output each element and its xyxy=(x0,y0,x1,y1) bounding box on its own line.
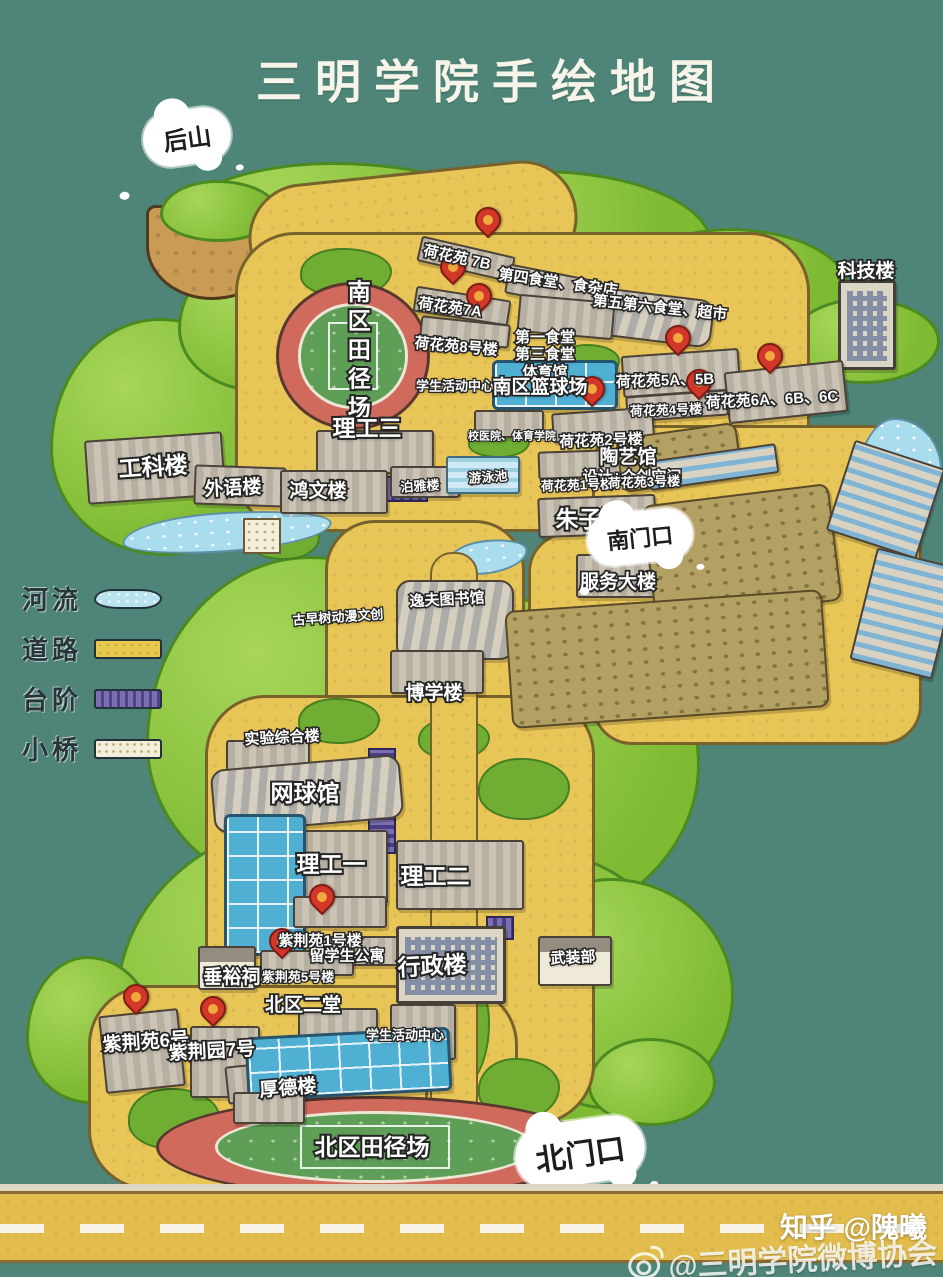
weibo-icon xyxy=(627,1251,660,1277)
map-label: 陶艺馆 xyxy=(599,447,656,469)
map-label: 北区田径场 xyxy=(315,1134,430,1160)
map-label: 第一食堂 第三食堂 体育馆 xyxy=(515,329,575,381)
legend-swatch-bridge xyxy=(94,739,162,759)
map-label: 南区田径场 xyxy=(344,280,370,425)
legend-swatch-steps xyxy=(94,689,162,709)
legend-item-steps: 台阶 xyxy=(22,680,162,717)
south-gate-cloud-label: 南门口 xyxy=(606,523,674,555)
legend-label: 小桥 xyxy=(22,730,82,767)
tree-mass xyxy=(588,1038,716,1126)
map-label: 外语楼 xyxy=(204,477,262,502)
map-canvas: 三明学院手绘地图 河流道路台阶小桥 知乎 @隗曦 @三明学院微博协会 荷花苑 7… xyxy=(0,0,943,1277)
legend: 河流道路台阶小桥 xyxy=(22,580,162,767)
map-label: 北区二堂 xyxy=(265,995,341,1017)
map-label: 垂裕祠 xyxy=(203,967,260,989)
grass-patch xyxy=(478,758,570,820)
legend-label: 道路 xyxy=(22,630,82,667)
map-label: 荷花苑3号楼 xyxy=(608,474,681,491)
legend-swatch-road xyxy=(94,639,162,659)
legend-item-road: 道路 xyxy=(22,630,162,667)
map-label: 理工二 xyxy=(401,863,470,889)
map-label: 学生活动中心 xyxy=(416,380,494,395)
page-title: 三明学院手绘地图 xyxy=(256,46,728,112)
back-hill-cloud-label: 后山 xyxy=(162,123,213,156)
map-label: 博学楼 xyxy=(405,683,462,705)
north-gate-cloud-label: 北门口 xyxy=(534,1133,628,1178)
map-label: 行政楼 xyxy=(397,951,467,981)
map-label: 紫荆苑5号楼 xyxy=(262,971,334,986)
map-label: 游泳池 xyxy=(468,469,508,487)
back-hill-cloud: 后山 xyxy=(140,104,235,171)
keji-tower xyxy=(838,280,896,370)
map-label: 网球馆 xyxy=(271,780,340,806)
map-label: 紫荆园7号 xyxy=(168,1039,256,1065)
map-label: 武装部 xyxy=(550,948,596,968)
legend-item-bridge: 小桥 xyxy=(22,730,162,767)
map-label: 校医院、体育学院 xyxy=(468,431,556,444)
legend-swatch-river xyxy=(94,589,162,609)
south-gate-cloud: 南门口 xyxy=(585,506,696,569)
map-label: 理工一 xyxy=(297,851,366,877)
map-label: 工科楼 xyxy=(118,451,189,482)
road-curb xyxy=(0,1184,943,1191)
north-gate-cloud: 北门口 xyxy=(511,1111,649,1192)
map-label: 服务大楼 xyxy=(580,572,656,594)
map-label: 荷花苑1号楼 xyxy=(541,477,614,494)
zijing-1 xyxy=(293,896,387,928)
bridge xyxy=(243,518,281,554)
field-2 xyxy=(504,589,829,729)
map-label: 南区篮球场 xyxy=(492,377,587,399)
map-label: 理工三 xyxy=(333,415,402,441)
map-label: 科技楼 xyxy=(837,261,894,283)
map-label: 鸿文楼 xyxy=(289,481,346,503)
legend-label: 河流 xyxy=(22,580,82,617)
map-label: 留学生公寓 xyxy=(309,947,384,964)
map-label: 泊雅楼 xyxy=(400,478,440,496)
legend-label: 台阶 xyxy=(22,680,82,717)
map-label: 学生活动中心 xyxy=(366,1029,444,1044)
legend-item-river: 河流 xyxy=(22,580,162,617)
map-label: 荷花苑5A、5B xyxy=(616,371,715,392)
map-label: 荷花苑4号楼 xyxy=(630,402,703,419)
